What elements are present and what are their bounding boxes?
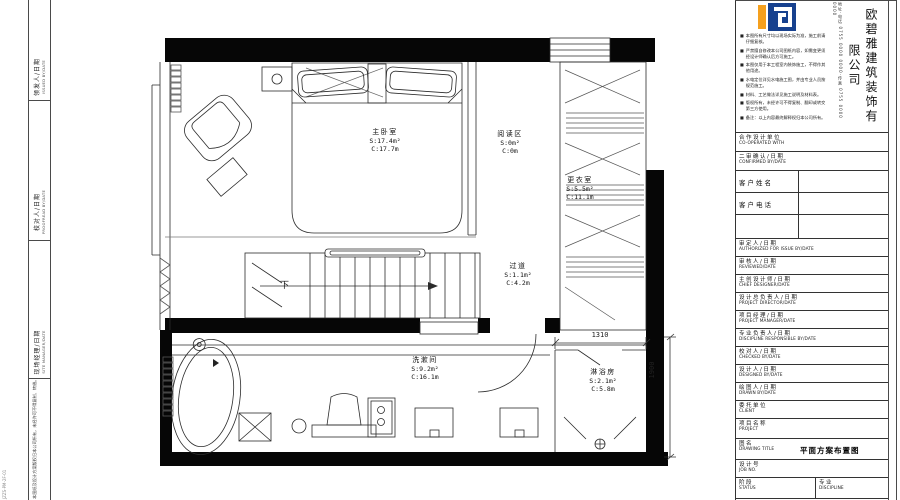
bullet-icon: ■ <box>740 115 744 121</box>
bullet-icon: ■ <box>740 77 744 89</box>
room-area: S:2.1m² <box>589 377 616 385</box>
floor-drain <box>292 419 306 433</box>
note-item: ■严禁擅自修改本公司图纸内容，如需变更须经设计师确认后方可施工。 <box>740 48 828 60</box>
room-name: 淋浴房 <box>558 368 648 377</box>
note-text: 本图仅用于本工程室内装饰施工，不得作其他用途。 <box>746 62 828 74</box>
tub-marker <box>213 359 219 367</box>
cell-divider <box>798 193 799 214</box>
note-text: 材料、工艺做法详见施工说明及材料表。 <box>746 92 821 98</box>
tb-row-client: 委托单位CLIENT <box>736 401 889 419</box>
room-perimeter: C:11.1m <box>566 193 593 201</box>
room-perimeter: C:0m <box>502 147 518 155</box>
margin-line-inner <box>50 0 51 500</box>
pillow-left <box>297 67 369 98</box>
room-name: 更衣室 <box>530 176 630 185</box>
tb-row-job-no: 设计号JOB NO. <box>736 460 889 478</box>
tb-row-chief-designer: 主创设计师/日期CHIEF DESIGNER/DATE <box>736 275 889 293</box>
radiator-bedroom <box>171 65 181 112</box>
sink-right <box>500 408 538 437</box>
room-label-shower: 淋浴房 S:2.1m² C:5.8m <box>558 368 648 393</box>
tb-row-project-manager: 项目经理/日期PROJECT MANAGER/DATE <box>736 311 889 329</box>
tb-row-discipline-responsible: 专业负责人/日期DISCIPLINE RESPONSIBLE BY/DATE <box>736 329 889 347</box>
window-top <box>550 38 610 62</box>
tb-row-status-discipline: 阶段STATUS 专业DISCIPLINE <box>736 478 889 499</box>
dim-shower-depth: 1900 <box>648 345 656 395</box>
shower-room <box>555 350 646 452</box>
cell-divider <box>798 215 799 238</box>
room-area: S:9.2m² <box>411 365 438 373</box>
tb-row-project: 项目名称PROJECT <box>736 419 889 439</box>
title-block-rows: 合作设计单位CO-OPERATED WITH 二审确认/日期CONFIRMED … <box>736 133 889 500</box>
margin-label-en: SITE MANAGER/DATE <box>41 292 46 412</box>
margin-label-cn: 校对人/日期 <box>32 152 41 272</box>
room-area: S:17.4m² <box>369 137 400 145</box>
tb-row-drawn: 绘图人/日期DRAWN BY/DATE <box>736 383 889 401</box>
cell-divider <box>798 171 799 192</box>
sheet-right-border <box>896 0 897 500</box>
room-perimeter: C:17.7m <box>371 145 398 153</box>
note-text: 备注：以上内容最终解释权归本公司所有。 <box>746 115 826 121</box>
dim-shower-width: 1310 <box>555 331 645 339</box>
room-name: 主卧室 <box>320 128 450 137</box>
note-item: ■版权所有，未经许可不得复制、翻印或转交第三方使用。 <box>740 100 828 112</box>
cell-divider <box>815 478 816 498</box>
wall-left <box>152 62 170 330</box>
margin-label-en: ISSUED BY/DATE <box>41 17 46 137</box>
drain-box <box>239 413 271 441</box>
tb-row-project-director: 设计总负责人/日期PROJECT DIRECTOR/DATE <box>736 293 889 311</box>
ottoman <box>207 158 247 197</box>
sheet-top-border <box>735 0 896 1</box>
room-area: S:5.5m² <box>566 185 593 193</box>
bullet-icon: ■ <box>740 92 744 98</box>
room-perimeter: C:16.1m <box>411 373 438 381</box>
armchair <box>180 90 257 165</box>
room-name: 阅读区 <box>462 130 558 139</box>
margin-label-proofread: 校对人/日期 PROOFREAD BY/DATE <box>32 152 46 272</box>
sheet-edge-code: JZZS-PM-2F-01 <box>2 470 7 499</box>
drawing-title-value: 平面方案布置图 <box>800 445 860 456</box>
note-text: 水电定位详见水电施工图，并由专业人员按规范施工。 <box>746 77 828 89</box>
tb-row-drawing-title: 图名DRAWING TITLE 平面方案布置图 <box>736 439 889 460</box>
room-area: S:1.1m² <box>504 271 531 279</box>
discipline-cell: 专业DISCIPLINE <box>819 480 844 492</box>
margin-label-cn: 领发人/日期 <box>32 17 41 137</box>
stairs-down-label: 下 <box>280 278 289 291</box>
title-block-header: ■本图所有尺寸均以现场实际为准，施工前请仔细复核。 ■严禁擅自修改本公司图纸内容… <box>736 0 889 133</box>
margin-line-outer <box>28 0 29 500</box>
room-perimeter: C:5.8m <box>591 385 614 393</box>
bullet-icon: ■ <box>740 100 744 112</box>
margin-label-issued: 领发人/日期 ISSUED BY/DATE <box>32 17 46 137</box>
tb-row-reviewed: 审核人/日期REVIEWED/DATE <box>736 257 889 275</box>
toilet <box>312 394 376 438</box>
stairs-arrow <box>428 282 438 290</box>
floor-plan <box>140 25 685 475</box>
tb-row-client-phone: 客户电话 <box>736 193 889 215</box>
room-label-corridor: 过道 S:1.1m² C:4.2m <box>468 262 568 287</box>
note-item: ■材料、工艺做法详见施工说明及材料表。 <box>740 92 828 98</box>
tb-row-client-name: 客户姓名 <box>736 171 889 193</box>
pillow-right <box>385 67 457 98</box>
room-perimeter: C:4.2m <box>506 279 529 287</box>
sink-left <box>415 408 453 437</box>
drawing-sheet: 领发人/日期 ISSUED BY/DATE 校对人/日期 PROOFREAD B… <box>0 0 900 500</box>
room-name: 过道 <box>468 262 568 271</box>
note-item: ■本图所有尺寸均以现场实际为准，施工前请仔细复核。 <box>740 33 828 45</box>
room-label-dressing: 更衣室 S:5.5m² C:11.1m <box>530 176 630 201</box>
note-item: ■本图仅用于本工程室内装饰施工，不得作其他用途。 <box>740 62 828 74</box>
title-block-right-border <box>888 0 889 500</box>
margin-copyright-note: 本图纸及设计方案版权归本公司所有，未经许可不得复制、转借。 <box>32 378 38 499</box>
company-name: 欧碧雅建筑装饰有限公司 <box>842 2 880 130</box>
tb-row-cooperated: 合作设计单位CO-OPERATED WITH <box>736 133 889 152</box>
room-name: 洗漱间 <box>375 356 475 365</box>
note-text: 版权所有，未经许可不得复制、翻印或转交第三方使用。 <box>746 100 828 112</box>
room-area: S:0m² <box>500 139 520 147</box>
tb-row-blank <box>736 215 889 239</box>
tb-row-authorized: 审定人/日期AUTHORIZED FOR ISSUE BY/DATE <box>736 239 889 257</box>
room-label-reading: 阅读区 S:0m² C:0m <box>462 130 558 155</box>
cabinet <box>368 398 395 437</box>
general-notes: ■本图所有尺寸均以现场实际为准，施工前请仔细复核。 ■严禁擅自修改本公司图纸内容… <box>740 33 828 124</box>
company-logo-icon <box>758 3 820 31</box>
bullet-icon: ■ <box>740 48 744 60</box>
room-label-master: 主卧室 S:17.4m² C:17.7m <box>320 128 450 153</box>
tb-row-designed: 设计人/日期DESIGNED BY/DATE <box>736 365 889 383</box>
nightstand <box>262 67 292 91</box>
note-text: 本图所有尺寸均以现场实际为准，施工前请仔细复核。 <box>746 33 828 45</box>
bathtub <box>164 335 247 459</box>
margin-label-en: PROOFREAD BY/DATE <box>41 152 46 272</box>
bullet-icon: ■ <box>740 33 744 45</box>
tb-row-checked: 校对人/日期CHECKED BY/DATE <box>736 347 889 365</box>
note-item: ■水电定位详见水电施工图，并由专业人员按规范施工。 <box>740 77 828 89</box>
tb-row-confirmed: 二审确认/日期CONFIRMED BY/DATE <box>736 152 889 171</box>
note-text: 严禁擅自修改本公司图纸内容，如需变更须经设计师确认后方可施工。 <box>746 48 828 60</box>
title-block: ■本图所有尺寸均以现场实际为准，施工前请仔细复核。 ■严禁擅自修改本公司图纸内容… <box>735 0 889 500</box>
room-label-washroom: 洗漱间 S:9.2m² C:16.1m <box>375 356 475 381</box>
note-item: ■备注：以上内容最终解释权归本公司所有。 <box>740 115 828 121</box>
bullet-icon: ■ <box>740 62 744 74</box>
